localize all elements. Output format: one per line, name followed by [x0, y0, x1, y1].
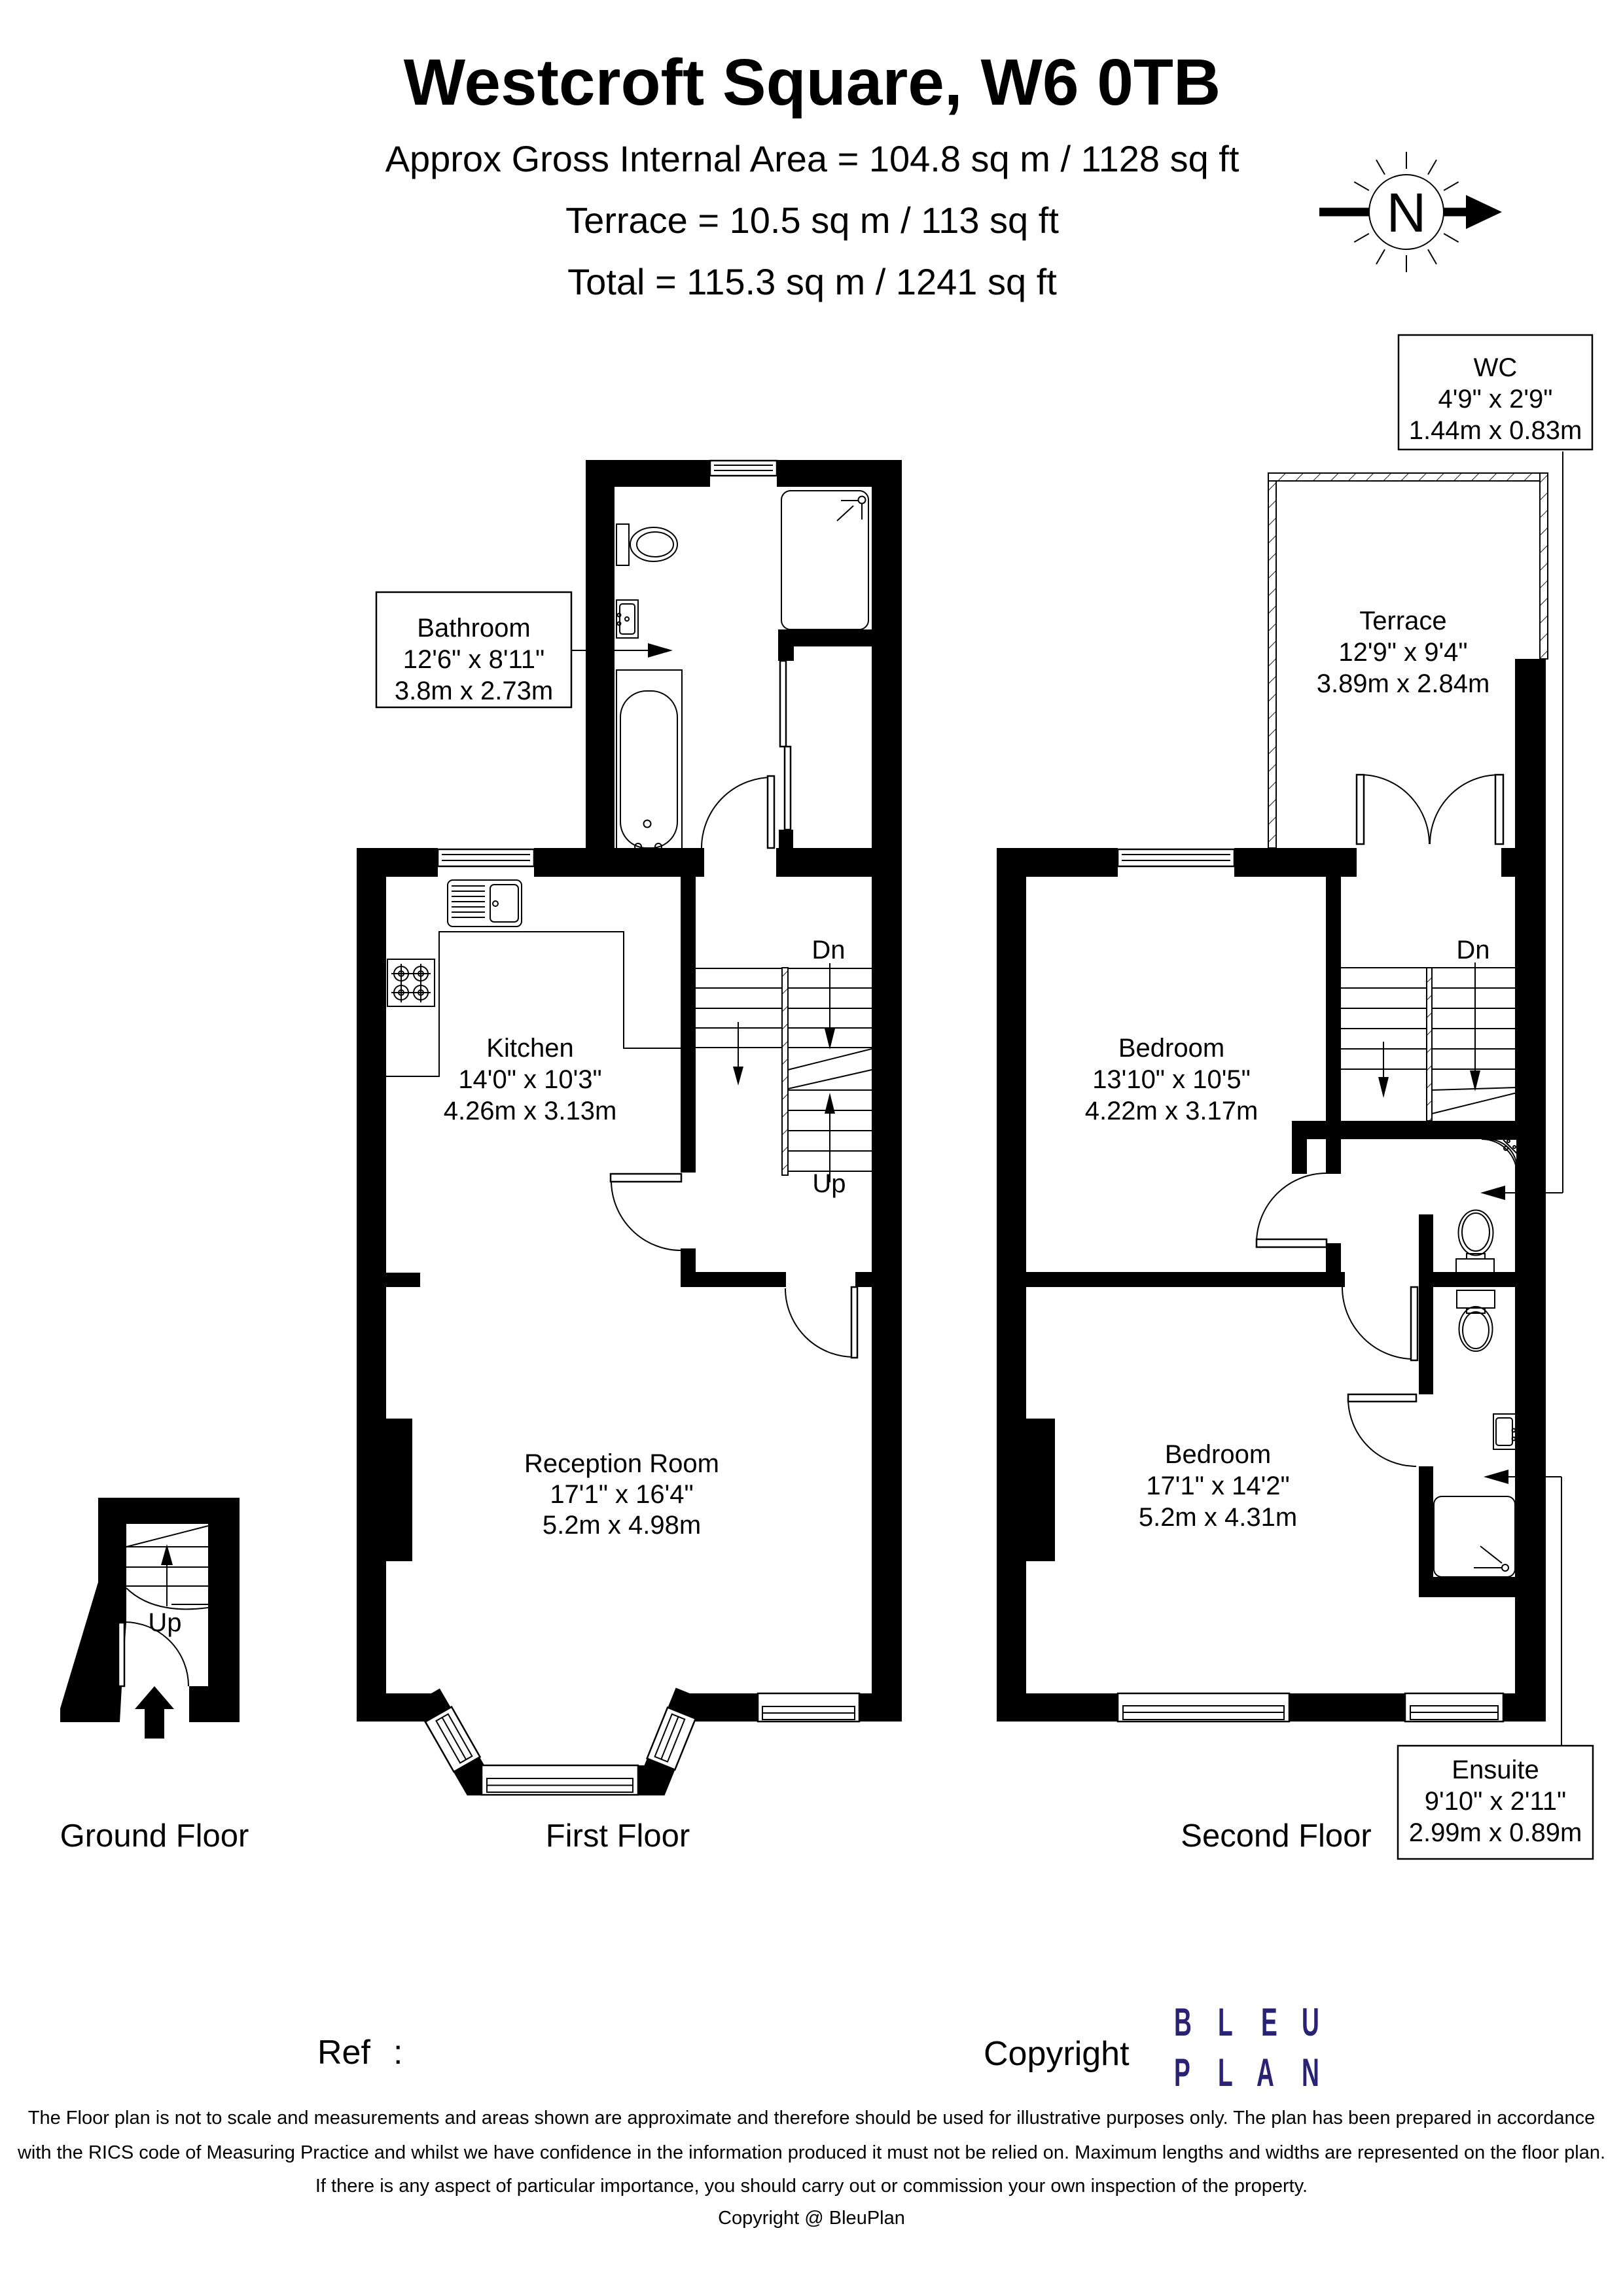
svg-text:E: E: [1261, 2000, 1277, 2044]
svg-text:Bathroom: Bathroom: [417, 614, 530, 643]
svg-text:B: B: [1174, 2000, 1192, 2044]
svg-text:Ref: Ref: [317, 2034, 370, 2072]
svg-text:12'6" x 8'11": 12'6" x 8'11": [403, 645, 544, 674]
svg-text:13'10" x 10'5": 13'10" x 10'5": [1092, 1065, 1251, 1094]
svg-text:Ground Floor: Ground Floor: [60, 1818, 249, 1854]
svg-text:Bedroom: Bedroom: [1118, 1034, 1224, 1063]
svg-text:17'1" x 16'4": 17'1" x 16'4": [550, 1480, 693, 1509]
svg-text:17'1" x 14'2": 17'1" x 14'2": [1146, 1472, 1289, 1500]
svg-text:Ensuite: Ensuite: [1452, 1756, 1539, 1784]
svg-text:Reception Room: Reception Room: [524, 1449, 719, 1478]
svg-text:WC: WC: [1474, 353, 1518, 382]
svg-text:If there is any aspect of part: If there is any aspect of particular imp…: [315, 2176, 1308, 2197]
svg-text:Terrace: Terrace: [1359, 607, 1446, 635]
svg-text:Total = 115.3 sq m / 1241 sq f: Total = 115.3 sq m / 1241 sq ft: [567, 261, 1057, 302]
svg-text:L: L: [1218, 2051, 1233, 2094]
svg-text:1.44m x 0.83m: 1.44m x 0.83m: [1409, 416, 1582, 445]
svg-text:Approx Gross Internal Area = 1: Approx Gross Internal Area = 104.8 sq m …: [385, 138, 1240, 179]
svg-text:3.8m x 2.73m: 3.8m x 2.73m: [395, 677, 553, 705]
svg-text:5.2m x 4.98m: 5.2m x 4.98m: [543, 1511, 701, 1540]
svg-text:Up: Up: [148, 1608, 181, 1637]
svg-text:Terrace = 10.5 sq m / 113 sq f: Terrace = 10.5 sq m / 113 sq ft: [565, 200, 1059, 241]
svg-text:4.26m x 3.13m: 4.26m x 3.13m: [444, 1097, 617, 1125]
svg-text:Up: Up: [812, 1169, 846, 1198]
svg-text:with the RICS code of Measurin: with the RICS code of Measuring Practice…: [17, 2142, 1605, 2163]
svg-text:3.89m x 2.84m: 3.89m x 2.84m: [1317, 669, 1490, 698]
svg-text:4.22m x 3.17m: 4.22m x 3.17m: [1085, 1097, 1258, 1125]
svg-text:9'10" x 2'11": 9'10" x 2'11": [1425, 1787, 1566, 1816]
svg-text:Westcroft Square, W6 0TB: Westcroft Square, W6 0TB: [404, 46, 1221, 119]
svg-text:N: N: [1302, 2051, 1319, 2094]
svg-text:Copyright: Copyright: [984, 2035, 1130, 2073]
svg-text:4'9" x 2'9": 4'9" x 2'9": [1438, 385, 1553, 414]
svg-text:2.99m x 0.89m: 2.99m x 0.89m: [1409, 1818, 1582, 1847]
svg-text:L: L: [1218, 2000, 1233, 2044]
svg-text:U: U: [1302, 2000, 1319, 2044]
svg-text:12'9" x 9'4": 12'9" x 9'4": [1338, 638, 1467, 667]
svg-text::: :: [393, 2034, 402, 2072]
svg-text:14'0" x 10'3": 14'0" x 10'3": [458, 1065, 601, 1094]
svg-text:Copyright @ BleuPlan: Copyright @ BleuPlan: [718, 2208, 905, 2229]
svg-text:Dn: Dn: [1456, 936, 1489, 964]
svg-text:Bedroom: Bedroom: [1165, 1440, 1271, 1469]
svg-text:Kitchen: Kitchen: [486, 1034, 573, 1063]
svg-text:5.2m x 4.31m: 5.2m x 4.31m: [1139, 1503, 1297, 1532]
svg-text:N: N: [1387, 182, 1427, 243]
svg-text:Second Floor: Second Floor: [1181, 1818, 1371, 1854]
svg-text:Dn: Dn: [811, 936, 845, 964]
svg-text:P: P: [1174, 2051, 1190, 2094]
svg-text:The Floor plan is not to scale: The Floor plan is not to scale and measu…: [28, 2108, 1595, 2128]
svg-text:First Floor: First Floor: [546, 1818, 690, 1854]
svg-text:A: A: [1257, 2051, 1274, 2094]
